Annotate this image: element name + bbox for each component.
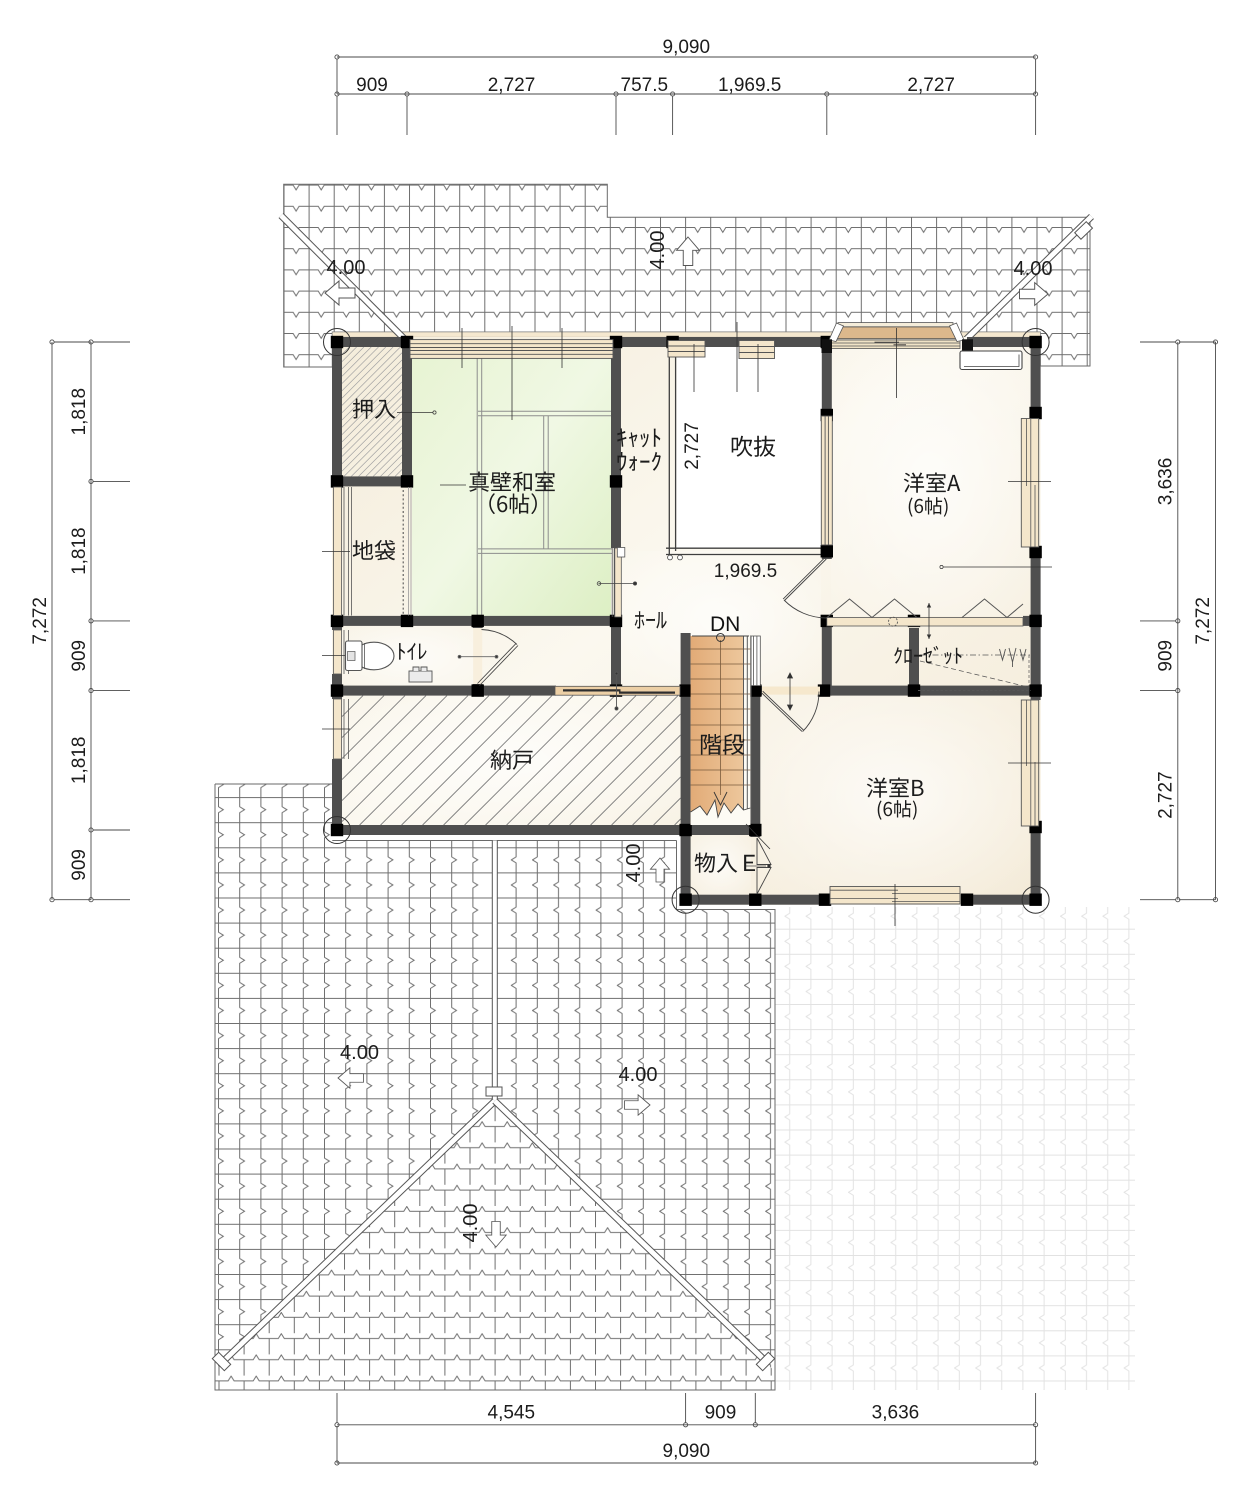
svg-text:2,727: 2,727	[1156, 771, 1177, 819]
svg-text:757.5: 757.5	[621, 75, 669, 96]
svg-text:7,272: 7,272	[1193, 597, 1214, 645]
svg-text:909: 909	[1156, 640, 1177, 672]
svg-text:1,969.5: 1,969.5	[714, 561, 777, 582]
svg-text:1,818: 1,818	[69, 388, 90, 436]
svg-text:4.00: 4.00	[327, 257, 366, 279]
svg-text:7,272: 7,272	[30, 597, 51, 645]
svg-text:DN: DN	[710, 613, 740, 636]
svg-text:3,636: 3,636	[1156, 458, 1177, 506]
svg-text:4.00: 4.00	[647, 231, 669, 270]
svg-text:909: 909	[356, 75, 388, 96]
svg-text:2,727: 2,727	[488, 75, 536, 96]
svg-text:4,545: 4,545	[488, 1403, 536, 1424]
svg-text:1,818: 1,818	[69, 527, 90, 575]
svg-text:2,727: 2,727	[907, 75, 955, 96]
svg-text:1,969.5: 1,969.5	[718, 75, 781, 96]
svg-text:4.00: 4.00	[1014, 258, 1053, 280]
svg-text:4.00: 4.00	[340, 1042, 379, 1064]
svg-text:909: 909	[705, 1403, 737, 1424]
svg-text:1,818: 1,818	[69, 737, 90, 785]
svg-text:2,727: 2,727	[682, 422, 703, 470]
svg-text:909: 909	[69, 849, 90, 881]
svg-text:9,090: 9,090	[663, 1441, 711, 1462]
svg-text:4.00: 4.00	[460, 1204, 482, 1243]
svg-text:3,636: 3,636	[872, 1403, 920, 1424]
svg-text:4.00: 4.00	[623, 844, 645, 883]
svg-text:909: 909	[69, 640, 90, 672]
svg-text:9,090: 9,090	[663, 37, 711, 58]
svg-text:4.00: 4.00	[619, 1064, 658, 1086]
